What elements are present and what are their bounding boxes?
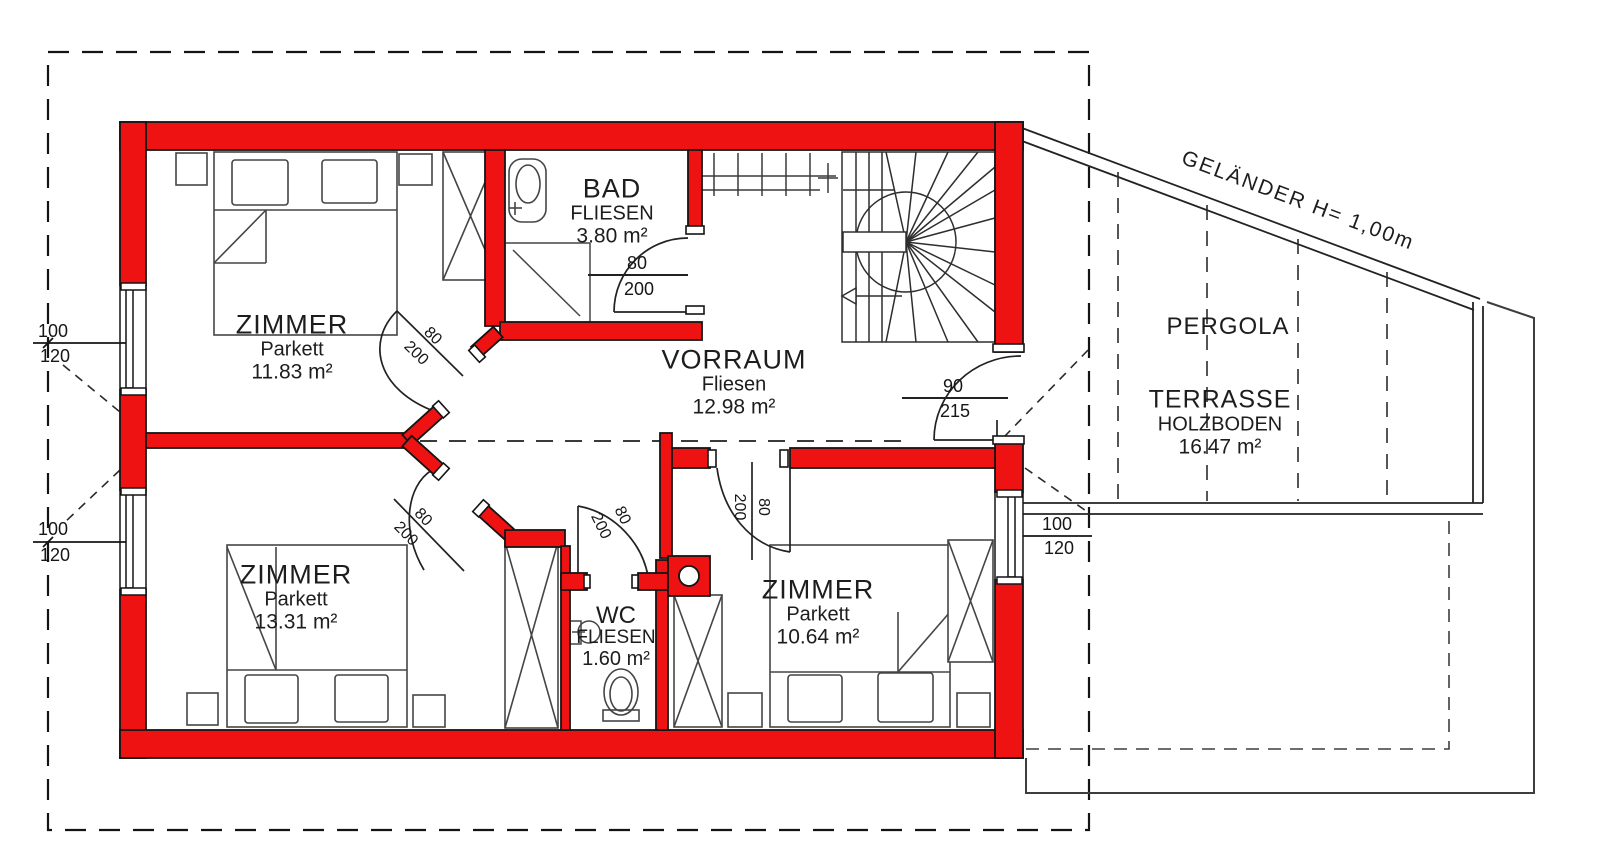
room-floor: Parkett (240, 589, 352, 611)
floor-plan: ZIMMER Parkett 11.83 m² BAD FLIESEN 3.80… (0, 0, 1600, 867)
door-terrace (902, 356, 1021, 440)
shower (505, 243, 590, 322)
room-label-vorraum: VORRAUM Fliesen 12.98 m² (661, 346, 806, 419)
bed-nw (214, 152, 397, 335)
window-dim-width: 100 (38, 520, 68, 538)
room-name: ZIMMER (762, 576, 874, 604)
room-floor: FLIESEN (570, 203, 653, 225)
room-floor: Fliesen (661, 374, 806, 396)
door-bad (588, 238, 688, 312)
room-label-terrasse: TERRASSE HOLZBODEN 16.47 m² (1149, 386, 1292, 459)
window-dim-width: 100 (1042, 515, 1072, 533)
bath-sink (509, 159, 546, 222)
window-dim-width: 100 (38, 322, 68, 340)
window-dim-height: 120 (40, 546, 70, 564)
room-label-wc: WC FLIESEN 1.60 m² (576, 604, 655, 670)
room-floor: HOLZBODEN (1149, 414, 1292, 436)
window-dim-height: 120 (1044, 539, 1074, 557)
terrace-outer-boundary (1026, 302, 1534, 793)
door-dim-zimmer-se: 80 200 (731, 494, 771, 521)
staircase (842, 152, 995, 342)
room-name: VORRAUM (661, 346, 806, 374)
room-area: 12.98 m² (661, 396, 806, 419)
room-area: 13.31 m² (240, 611, 352, 634)
room-name: WC (576, 604, 655, 628)
window-nw (121, 283, 146, 395)
entry-dim-height: 215 (940, 402, 970, 420)
plan-graphics (0, 0, 1600, 867)
wardrobe-sw (505, 542, 558, 728)
door-dim-width: 80 (627, 254, 647, 272)
pergola-label: PERGOLA (1166, 313, 1289, 341)
room-area: 16.47 m² (1149, 436, 1292, 459)
room-floor: FLIESEN (576, 628, 655, 648)
room-area: 11.83 m² (236, 361, 348, 384)
door-dim-height: 200 (624, 280, 654, 298)
room-area: 10.64 m² (762, 626, 874, 649)
room-floor: Parkett (762, 604, 874, 626)
room-label-zimmer-sw: ZIMMER Parkett 13.31 m² (240, 561, 352, 634)
entry-dim-width: 90 (943, 377, 963, 395)
ski-rack (688, 153, 838, 196)
room-area: 3.80 m² (570, 225, 653, 248)
room-name: BAD (570, 175, 653, 203)
chimney-flue (679, 566, 699, 586)
room-label-zimmer-se: ZIMMER Parkett 10.64 m² (762, 576, 874, 649)
room-name: ZIMMER (236, 311, 348, 339)
room-area: 1.60 m² (576, 648, 655, 670)
room-floor: Parkett (236, 339, 348, 361)
room-name: TERRASSE (1149, 386, 1292, 414)
room-label-zimmer-nw: ZIMMER Parkett 11.83 m² (236, 311, 348, 384)
toilet (603, 669, 639, 721)
window-dim-height: 120 (40, 347, 70, 365)
window-se (997, 490, 1022, 584)
room-name: ZIMMER (240, 561, 352, 589)
room-label-bad: BAD FLIESEN 3.80 m² (570, 175, 653, 248)
